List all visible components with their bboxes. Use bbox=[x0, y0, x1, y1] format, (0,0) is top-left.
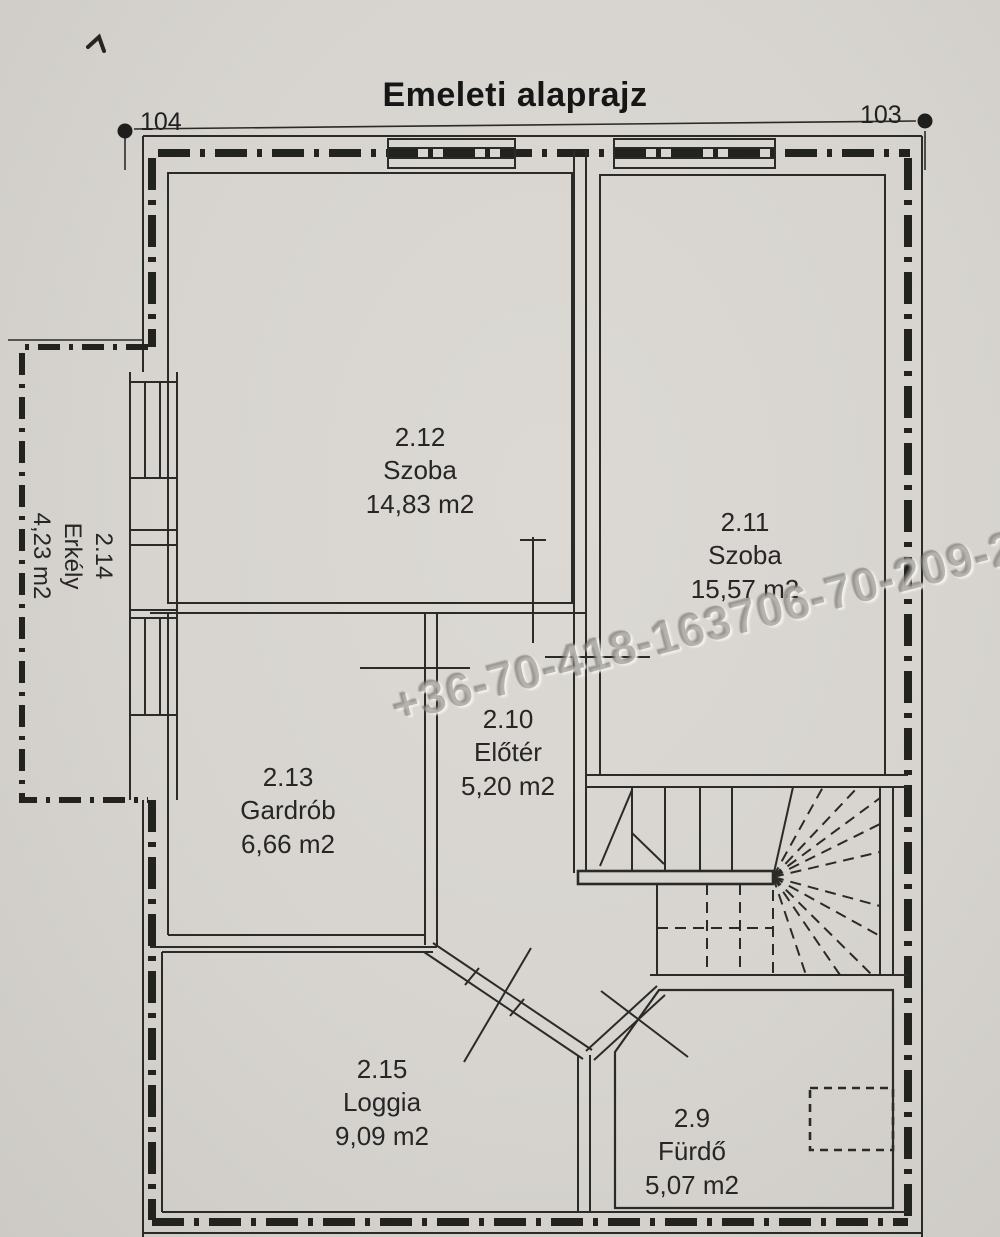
staircase bbox=[578, 787, 893, 975]
roof-window-dashed-rect bbox=[810, 1088, 893, 1150]
left-wall-openings bbox=[130, 372, 177, 800]
room-label-gardrob-2-13: 2.13 Gardrób 6,66 m2 bbox=[240, 761, 335, 861]
room-number: 2.11 bbox=[691, 506, 799, 539]
room-label-eloter-2-10: 2.10 Előtér 5,20 m2 bbox=[461, 703, 555, 803]
room-area: 5,07 m2 bbox=[645, 1169, 739, 1202]
balcony-window-1 bbox=[130, 382, 177, 478]
room-label-szoba-2-11: 2.11 Szoba 15,57 m2 bbox=[691, 506, 799, 606]
room-name: Fürdő bbox=[645, 1135, 739, 1168]
wall-axis-lines bbox=[152, 153, 910, 1222]
door-eloter-loggia bbox=[464, 948, 531, 1062]
survey-point-104-label: 104 bbox=[140, 108, 182, 137]
pen-scribble-mark bbox=[88, 37, 104, 51]
room-name: Loggia bbox=[335, 1086, 429, 1119]
room-label-erkely-2-14: 2.14 Erkély 4,23 m2 bbox=[25, 513, 119, 600]
room-label-loggia-2-15: 2.15 Loggia 9,09 m2 bbox=[335, 1053, 429, 1153]
survey-point-103-label: 103 bbox=[860, 101, 902, 130]
room-name: Szoba bbox=[366, 454, 474, 487]
room-name: Erkély bbox=[56, 513, 87, 600]
interior-walls bbox=[150, 150, 908, 1212]
room-area: 9,09 m2 bbox=[335, 1120, 429, 1153]
survey-point-104-dot bbox=[118, 124, 133, 139]
room-number: 2.10 bbox=[461, 703, 555, 736]
floor-plan-drawing bbox=[0, 0, 1000, 1237]
room-name: Gardrób bbox=[240, 794, 335, 827]
room-area: 14,83 m2 bbox=[366, 488, 474, 521]
room-area: 5,20 m2 bbox=[461, 770, 555, 803]
survey-markers bbox=[118, 114, 933, 171]
room-label-furdo-2-9: 2.9 Fürdő 5,07 m2 bbox=[645, 1102, 739, 1202]
floor-plan-scan: Emeleti alaprajz 104 103 2.12 Szoba 14,8… bbox=[0, 0, 1000, 1237]
room-number: 2.15 bbox=[335, 1053, 429, 1086]
room-area: 15,57 m2 bbox=[691, 573, 799, 606]
room-number: 2.13 bbox=[240, 761, 335, 794]
room-name: Szoba bbox=[691, 539, 799, 572]
room-number: 2.9 bbox=[645, 1102, 739, 1135]
room-area: 4,23 m2 bbox=[25, 513, 56, 600]
balcony-window-2 bbox=[130, 618, 177, 715]
stair-cut-bar bbox=[578, 871, 773, 884]
room-area: 6,66 m2 bbox=[240, 828, 335, 861]
room-name: Előtér bbox=[461, 736, 555, 769]
room-label-szoba-2-12: 2.12 Szoba 14,83 m2 bbox=[366, 421, 474, 521]
survey-point-103-dot bbox=[918, 114, 933, 129]
room-number: 2.14 bbox=[88, 513, 119, 600]
room-number: 2.12 bbox=[366, 421, 474, 454]
